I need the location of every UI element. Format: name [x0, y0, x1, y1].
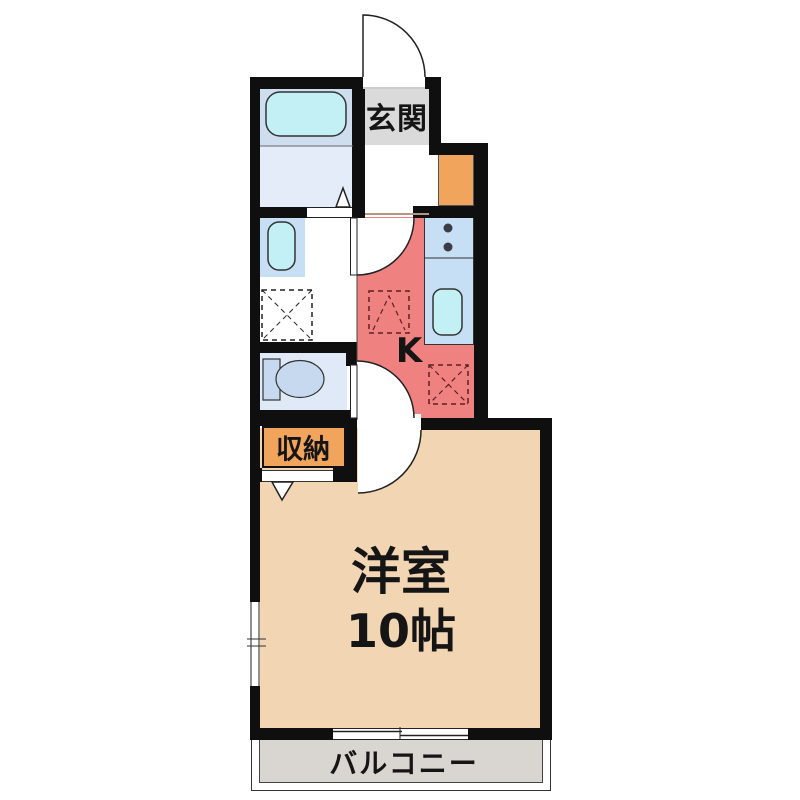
floor-plan-canvas: 玄関 K 収納 洋室 10帖 バルコニー	[0, 0, 800, 800]
entrance-label: 玄関	[366, 94, 428, 138]
kitchen-door-swing-fill	[357, 218, 414, 275]
kitchen-lower-door-panel	[351, 365, 358, 418]
balcony-label: バルコニー	[329, 742, 478, 782]
bathtub-icon	[266, 92, 346, 136]
appliance-space-upper-peak	[373, 296, 405, 330]
toilet-bowl-icon	[276, 361, 324, 398]
stove-burner-icon	[444, 243, 453, 252]
room-door-swing-fill	[358, 430, 421, 493]
bath-folding-door-icon	[336, 188, 350, 207]
main-room-label: 洋室 10帖	[346, 543, 456, 661]
kitchen-door-panel	[351, 218, 358, 275]
kitchen-label: K	[396, 331, 422, 371]
washbasin-icon	[268, 222, 295, 270]
main-room-name: 洋室	[346, 543, 456, 602]
kitchen-sink-icon	[433, 289, 462, 335]
stove-burner-icon	[444, 224, 453, 233]
main-room-size: 10帖	[346, 602, 456, 661]
entrance-door-swing-icon	[363, 15, 425, 77]
storage-folding-door-icon	[272, 482, 293, 500]
storage-label: 収納	[276, 428, 330, 467]
